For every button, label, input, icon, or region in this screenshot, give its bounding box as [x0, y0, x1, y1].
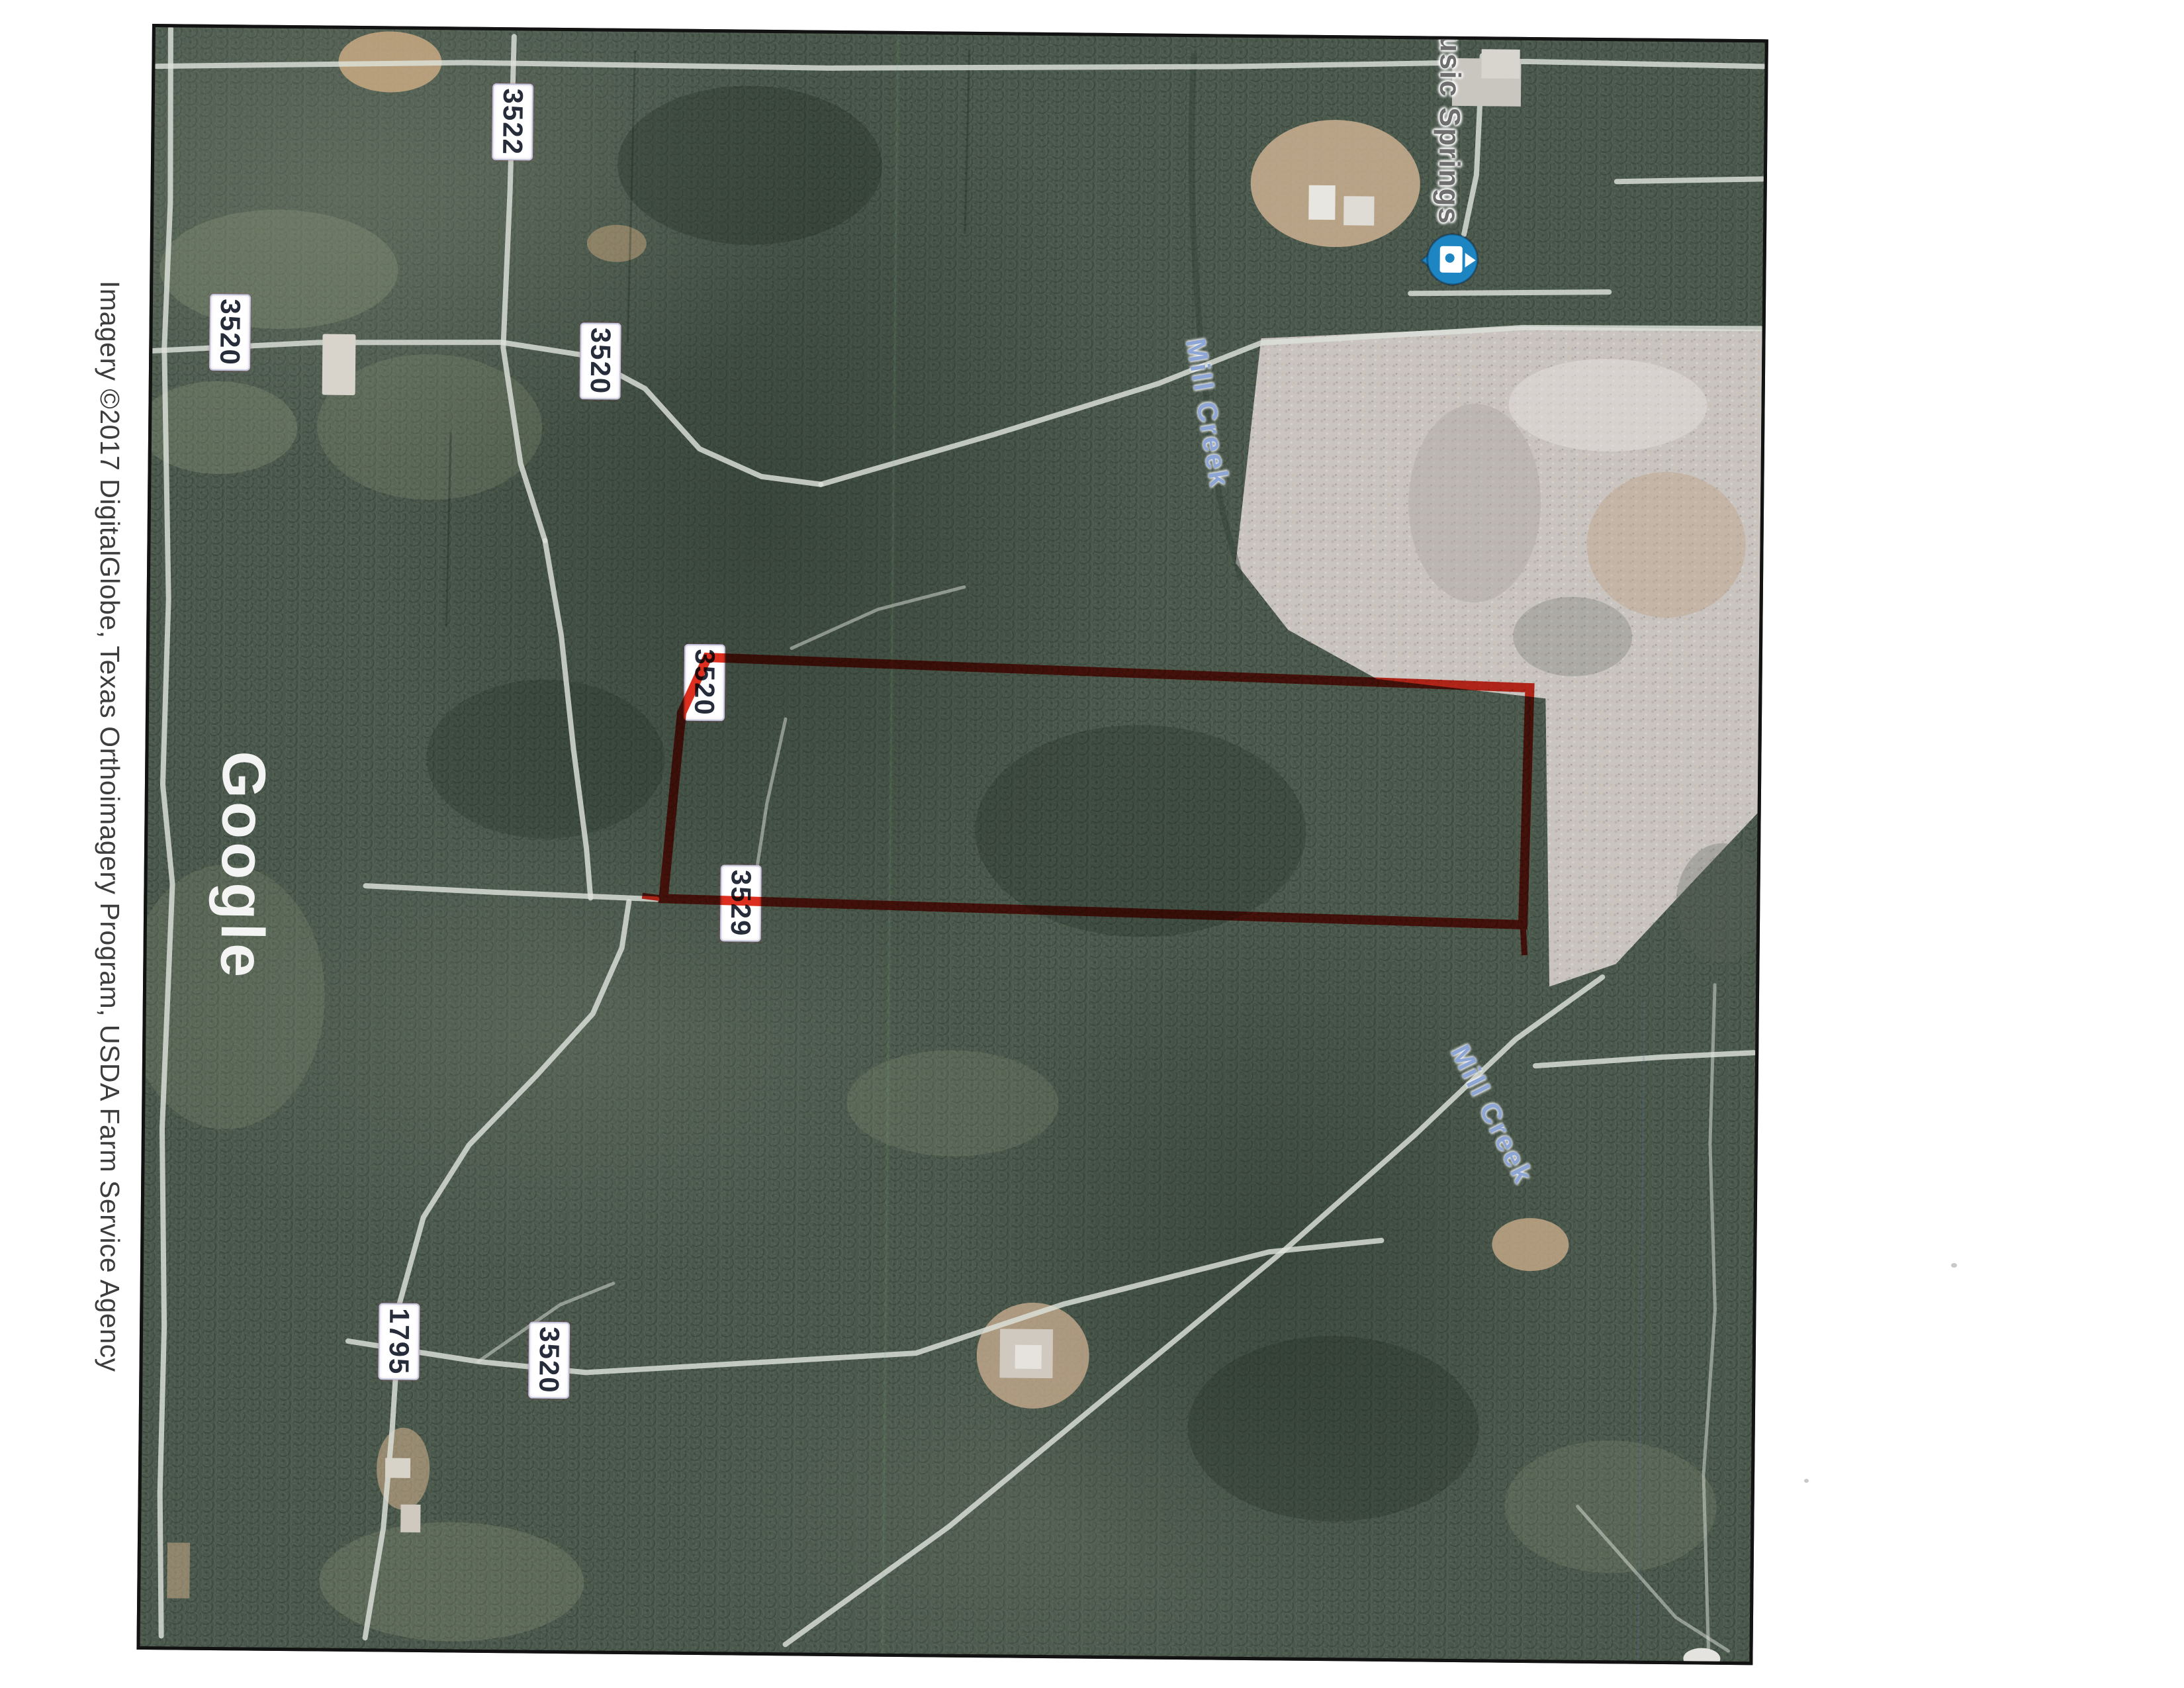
road-label-3520-west: 3520	[209, 294, 251, 371]
road-label-1795: 1795	[378, 1303, 420, 1380]
road-label-3529: 3529	[720, 865, 762, 942]
satellite-map: 3522 3520 3520 3520 3529 1795 3520 Mill …	[136, 24, 1768, 1665]
road-label-3520-south: 3520	[528, 1322, 570, 1399]
google-watermark: Google	[211, 751, 274, 981]
scan-speck	[1804, 1479, 1809, 1483]
terrain-layer	[140, 27, 1764, 1662]
creek-line	[1187, 53, 1246, 581]
road-label-3520-mid: 3520	[580, 322, 621, 400]
scan-speck	[1951, 1263, 1957, 1268]
imagery-attribution: Imagery ©2017 DigitalGlobe, Texas Orthoi…	[96, 281, 123, 1372]
road-label-3520-parcel: 3520	[684, 644, 725, 722]
poi-place-label: usic Springs	[1433, 34, 1465, 225]
poi-marker-icon	[1421, 234, 1478, 285]
road-label-3522: 3522	[492, 83, 533, 161]
forest-blotches	[140, 80, 1730, 1654]
